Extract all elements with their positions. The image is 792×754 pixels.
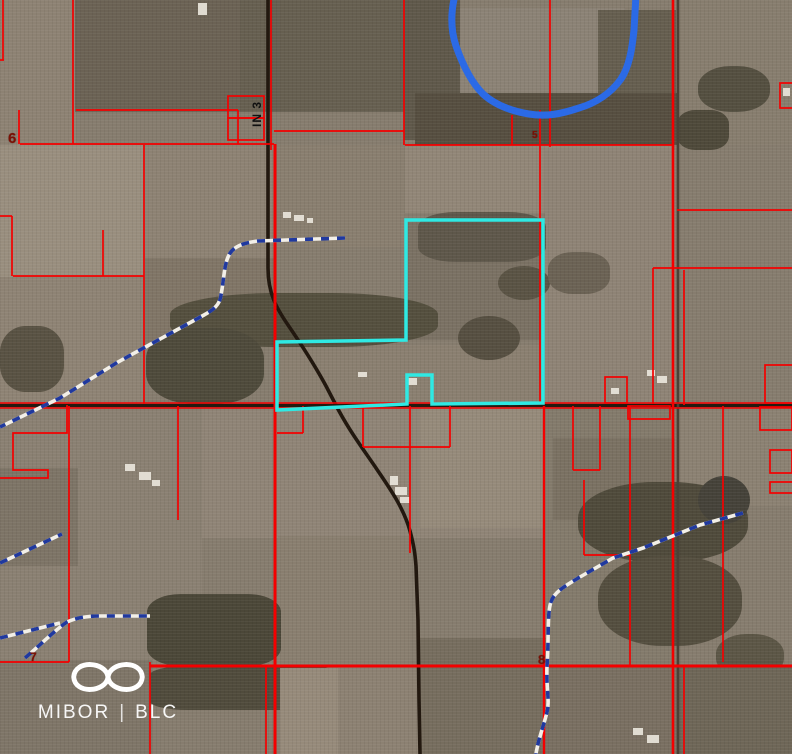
watermark-brand-text: MIBOR | BLC [26,702,190,724]
river-line [452,0,636,115]
parcel-boundary-box [765,365,792,403]
brand-mibor: MIBOR [38,702,110,724]
mibor-blc-watermark: MIBOR | BLC [26,656,190,724]
parcel-boundary-path [0,405,67,478]
building [125,464,135,471]
stream-lower-right [536,513,743,754]
road-state-route-3 [268,0,420,754]
building [307,218,313,223]
section-label-6: 6 [8,131,16,146]
infinity-icon [61,656,155,698]
map-feature-overlay [0,0,792,754]
brand-blc: BLC [135,702,178,724]
section-label-5: 5 [532,131,538,141]
parcel-boundary-box [770,482,792,493]
parcel-boundary-box [760,407,792,430]
building [395,487,407,495]
building [657,376,667,383]
building [294,215,304,221]
section-label-8: 8 [538,653,545,666]
building [633,728,643,735]
building [647,735,659,743]
building [283,212,291,218]
building [611,388,619,394]
building [139,472,151,480]
building [408,378,417,385]
building [152,480,160,486]
stream-left-lower [25,616,150,658]
aerial-map-canvas[interactable]: IN 3 6 7 8 5 MIBOR | BLC [0,0,792,754]
building [198,3,207,15]
building [783,88,790,96]
stream-left-lower [25,616,150,658]
parcel-boundary-box [770,450,792,473]
building [358,372,367,377]
building [390,476,398,485]
brand-divider: | [119,702,126,724]
building [400,497,410,503]
route-label-in3: IN 3 [251,92,265,136]
